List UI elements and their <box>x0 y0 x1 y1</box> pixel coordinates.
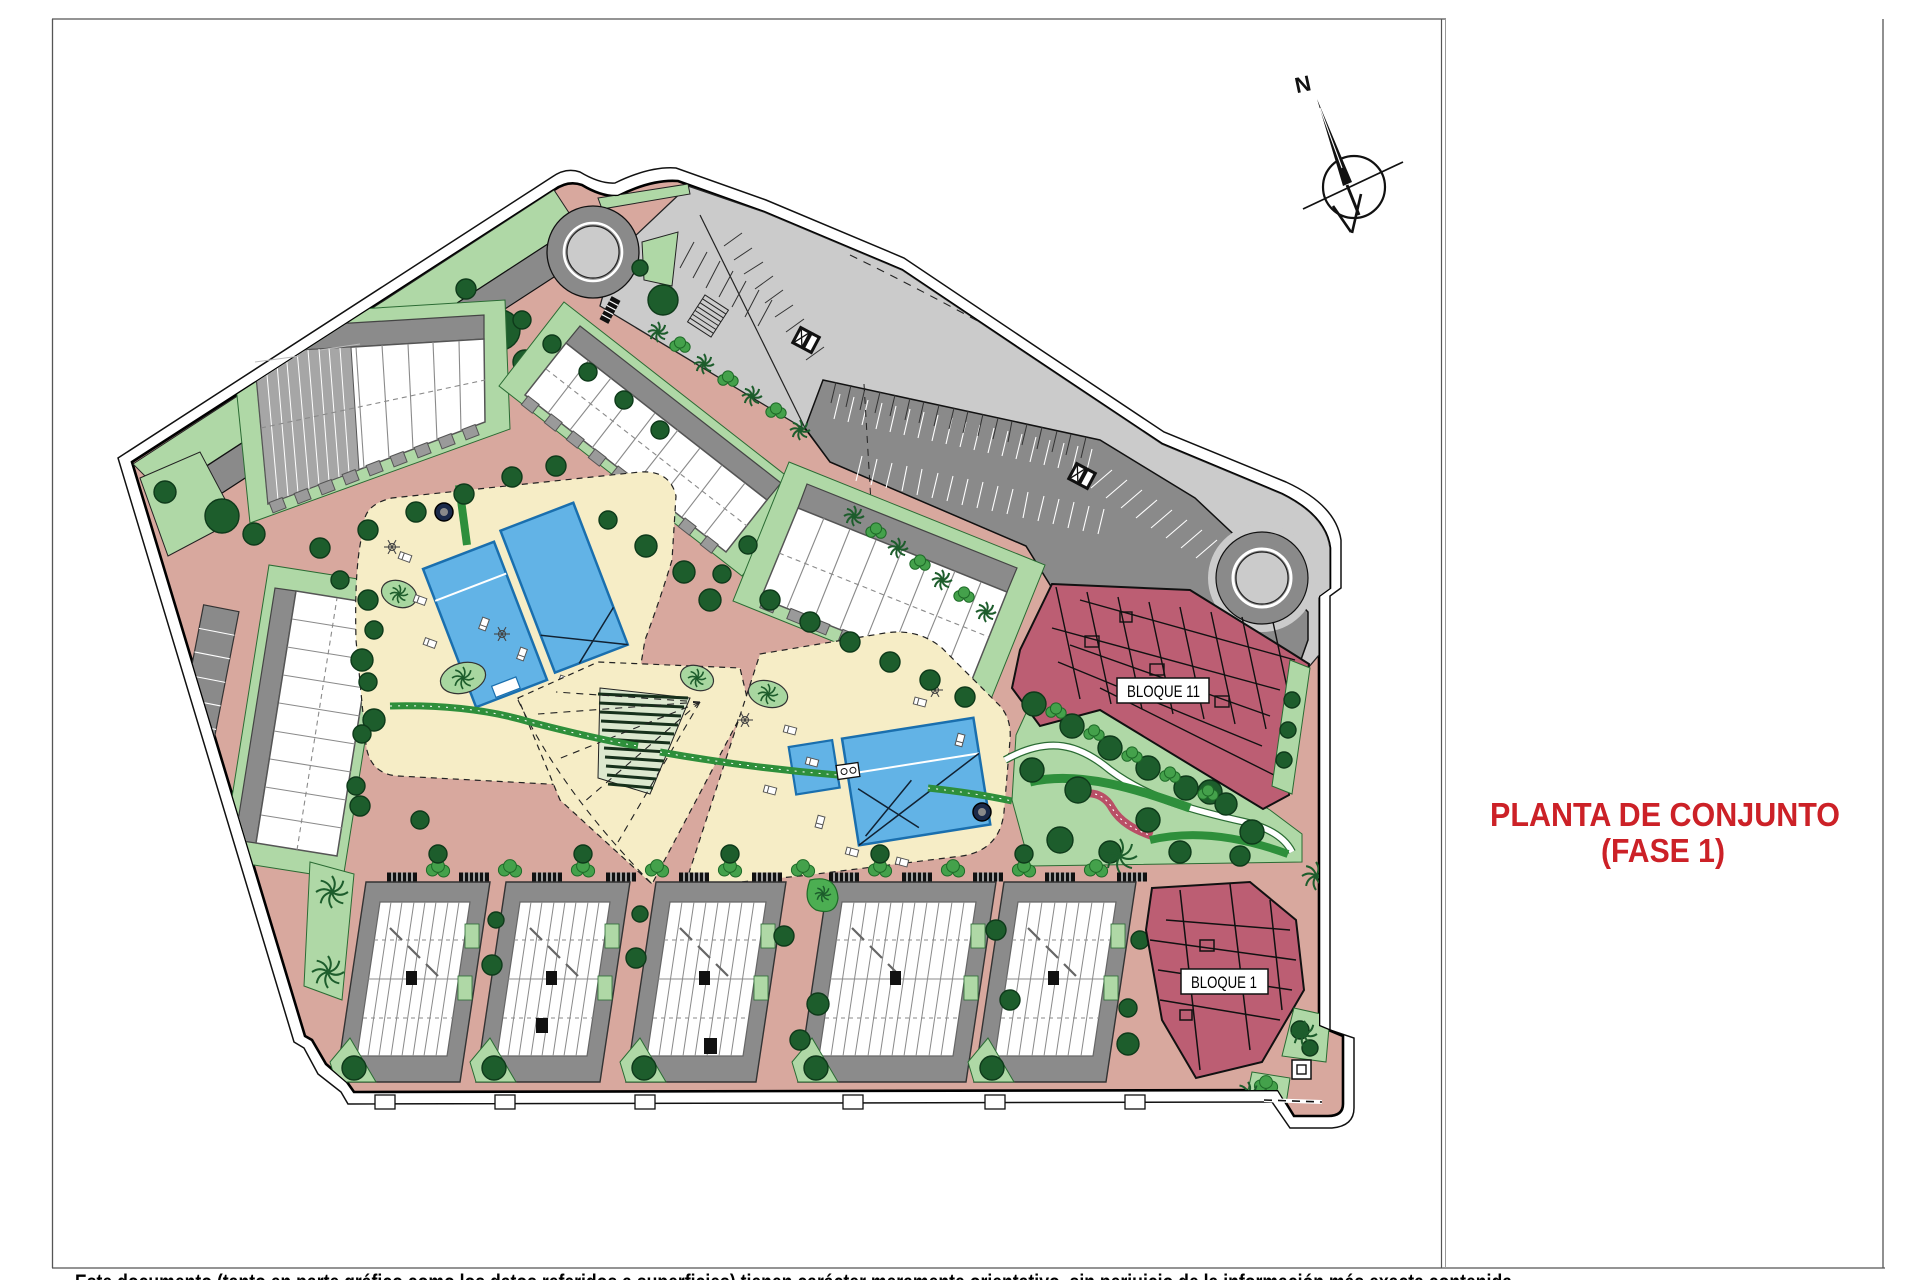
svg-text:(FASE 1): (FASE 1) <box>1601 832 1725 869</box>
svg-text:BLOQUE 1: BLOQUE 1 <box>1191 973 1257 992</box>
svg-text:BLOQUE 11: BLOQUE 11 <box>1127 682 1200 701</box>
svg-text:PLANTA DE CONJUNTO: PLANTA DE CONJUNTO <box>1490 796 1840 833</box>
svg-text:Este documento (tanto en parte: Este documento (tanto en parte gráfico c… <box>75 1271 1512 1280</box>
